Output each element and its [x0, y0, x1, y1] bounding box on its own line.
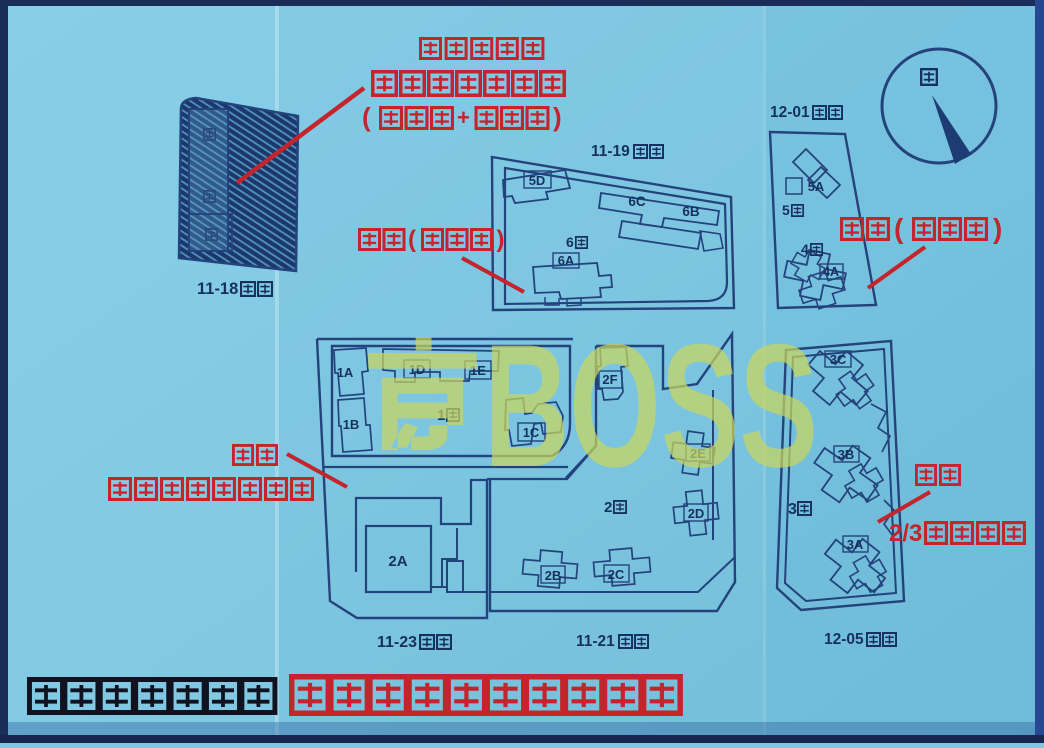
svg-text:6: 6	[566, 234, 574, 250]
svg-text:4: 4	[801, 241, 809, 257]
svg-text:11-18: 11-18	[197, 280, 238, 298]
svg-text:4A: 4A	[823, 265, 839, 279]
svg-text:3A: 3A	[847, 537, 864, 552]
svg-text:6B: 6B	[682, 204, 700, 219]
svg-text:12-05: 12-05	[824, 631, 864, 648]
svg-text:11-21: 11-21	[576, 633, 615, 650]
svg-text:11-19: 11-19	[591, 143, 630, 160]
svg-text:5A: 5A	[808, 179, 825, 194]
svg-text:2C: 2C	[608, 567, 625, 582]
svg-text:3C: 3C	[830, 352, 847, 367]
svg-text:12-01: 12-01	[770, 104, 810, 121]
svg-text:BOSS: BOSS	[484, 309, 818, 504]
svg-text:+: +	[457, 105, 470, 130]
svg-text:): )	[553, 102, 562, 132]
svg-text:11-23: 11-23	[377, 634, 417, 651]
svg-text:2B: 2B	[545, 568, 562, 583]
svg-text:): )	[993, 213, 1002, 244]
svg-text:1A: 1A	[337, 365, 354, 380]
svg-text:6C: 6C	[628, 194, 646, 209]
svg-text:2/3: 2/3	[889, 520, 922, 547]
svg-text:(: (	[362, 102, 371, 132]
svg-text:(: (	[894, 213, 904, 244]
svg-text:3B: 3B	[838, 447, 855, 462]
svg-text:2A: 2A	[388, 553, 407, 570]
svg-text:5D: 5D	[529, 173, 546, 188]
svg-text:5: 5	[782, 202, 790, 218]
svg-text:): )	[497, 226, 505, 253]
svg-text:(: (	[408, 226, 416, 253]
svg-text:2D: 2D	[688, 506, 705, 521]
svg-text:1B: 1B	[343, 417, 360, 432]
